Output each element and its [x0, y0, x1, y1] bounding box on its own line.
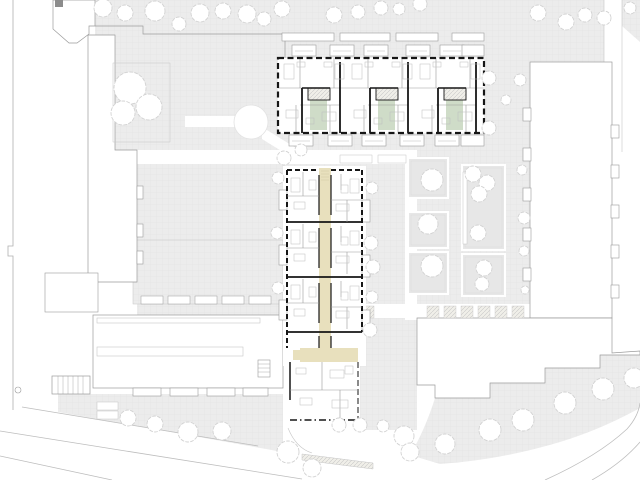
- building-south: [279, 166, 370, 422]
- tree: [117, 5, 133, 21]
- site-plan-canvas: [0, 0, 640, 480]
- tree: [475, 277, 489, 291]
- building-south-lower-base: [288, 362, 360, 422]
- tree: [303, 459, 321, 477]
- tree: [413, 0, 427, 11]
- existing-building: [523, 268, 531, 281]
- existing-building: [523, 148, 531, 161]
- existing-building: [15, 387, 21, 393]
- existing-building: [168, 296, 190, 304]
- existing-building: [141, 296, 163, 304]
- tree: [178, 422, 198, 442]
- existing-building: [170, 388, 198, 396]
- tree: [578, 8, 592, 22]
- tree: [421, 169, 443, 191]
- balcony: [440, 45, 464, 56]
- site-boundary: [8, 0, 13, 410]
- tree: [191, 4, 209, 22]
- tree: [476, 260, 492, 276]
- paving-square: [427, 306, 439, 318]
- existing-building: [97, 411, 118, 419]
- site-plan: [0, 0, 640, 480]
- tree: [470, 225, 486, 241]
- existing-building: [243, 388, 268, 396]
- plaza-circle: [234, 105, 268, 139]
- tree: [257, 12, 271, 26]
- verge-southwest: [58, 394, 283, 452]
- tree: [147, 416, 163, 432]
- planter: [282, 33, 334, 41]
- tree: [597, 11, 611, 25]
- tree: [519, 246, 529, 256]
- existing-block-roof: [133, 240, 283, 304]
- existing-building: [611, 245, 619, 258]
- tree: [295, 144, 307, 156]
- footpath: [340, 155, 372, 163]
- paving-square: [461, 306, 473, 318]
- tree: [435, 434, 455, 454]
- tree: [238, 5, 256, 23]
- balcony: [364, 45, 388, 56]
- stair-block: [258, 360, 270, 377]
- tree: [351, 5, 365, 19]
- stair-garden: [310, 100, 327, 130]
- building-north: [278, 33, 484, 146]
- balcony: [362, 135, 386, 146]
- tree: [530, 5, 546, 21]
- balcony: [362, 200, 370, 222]
- tree: [521, 286, 529, 294]
- planter: [452, 33, 484, 41]
- existing-building: [137, 186, 143, 199]
- tree: [172, 17, 186, 31]
- balcony: [461, 135, 484, 146]
- tree: [401, 443, 419, 461]
- tree: [377, 420, 389, 432]
- tree: [512, 409, 534, 431]
- existing-building: [195, 296, 217, 304]
- tree: [558, 14, 574, 30]
- tree: [366, 291, 378, 303]
- tree: [366, 182, 378, 194]
- paving-square: [495, 306, 507, 318]
- tree: [120, 410, 136, 426]
- existing-building: [611, 285, 619, 298]
- garden-wall: [97, 347, 243, 356]
- roof-element: [55, 0, 63, 7]
- tree: [213, 422, 231, 440]
- tree: [366, 260, 380, 274]
- existing-building: [611, 165, 619, 178]
- tree: [479, 419, 501, 441]
- tree: [353, 418, 367, 432]
- tree: [215, 3, 231, 19]
- existing-building: [611, 125, 619, 138]
- entry-stub: [293, 350, 300, 360]
- inner-court: [45, 273, 98, 312]
- road-edge: [0, 456, 112, 480]
- existing-building: [133, 388, 161, 396]
- tree: [111, 101, 135, 125]
- stair-core: [444, 88, 466, 100]
- existing-building: [523, 228, 531, 241]
- tree: [364, 236, 378, 250]
- paving-square: [444, 306, 456, 318]
- existing-building: [222, 296, 244, 304]
- tree: [517, 165, 527, 175]
- tree: [465, 166, 481, 182]
- tree: [592, 378, 614, 400]
- planter: [340, 33, 390, 41]
- tree: [518, 212, 530, 224]
- existing-building: [137, 224, 143, 237]
- tree: [514, 74, 526, 86]
- tree: [271, 227, 283, 239]
- tree: [501, 95, 511, 105]
- planter: [396, 33, 438, 41]
- tree: [272, 282, 284, 294]
- stair-garden: [378, 100, 395, 130]
- tree: [332, 418, 346, 432]
- existing-building: [249, 296, 271, 304]
- tree: [94, 0, 112, 17]
- stair-garden: [446, 100, 463, 130]
- existing-building: [137, 251, 143, 264]
- external-stair: [52, 376, 90, 394]
- tree: [482, 121, 496, 135]
- existing-building: [523, 188, 531, 201]
- existing-building: [207, 388, 235, 396]
- stair-core: [376, 88, 398, 100]
- balcony: [435, 135, 459, 146]
- stair-core: [308, 88, 330, 100]
- tree: [554, 392, 576, 414]
- balcony: [406, 45, 430, 56]
- existing-building: [611, 205, 619, 218]
- tree: [274, 1, 290, 17]
- road-curve: [592, 442, 640, 480]
- paving-square: [512, 306, 524, 318]
- bed-path: [463, 172, 467, 244]
- balcony: [279, 245, 287, 265]
- tree: [624, 2, 636, 14]
- tree: [482, 71, 496, 85]
- tree: [277, 441, 299, 463]
- balcony: [279, 300, 287, 320]
- garden-wall: [97, 318, 260, 323]
- tree: [393, 3, 405, 15]
- footpath: [378, 155, 406, 163]
- balcony: [292, 45, 316, 56]
- tree: [374, 1, 388, 15]
- entry-hall: [300, 348, 358, 362]
- balcony: [328, 135, 352, 146]
- tree: [363, 323, 377, 337]
- tree: [145, 1, 165, 21]
- balcony: [400, 135, 424, 146]
- balcony: [279, 190, 287, 210]
- building-east: [530, 62, 612, 318]
- tree: [272, 172, 284, 184]
- existing-building: [97, 402, 118, 410]
- balcony: [462, 45, 484, 56]
- tree: [326, 7, 342, 23]
- paving-square: [478, 306, 490, 318]
- tree: [471, 186, 487, 202]
- existing-building: [523, 108, 531, 121]
- path-to-plaza: [185, 116, 236, 127]
- tree: [421, 255, 443, 277]
- tree: [277, 151, 291, 165]
- balcony: [330, 45, 354, 56]
- tree: [418, 214, 438, 234]
- tree: [136, 94, 162, 120]
